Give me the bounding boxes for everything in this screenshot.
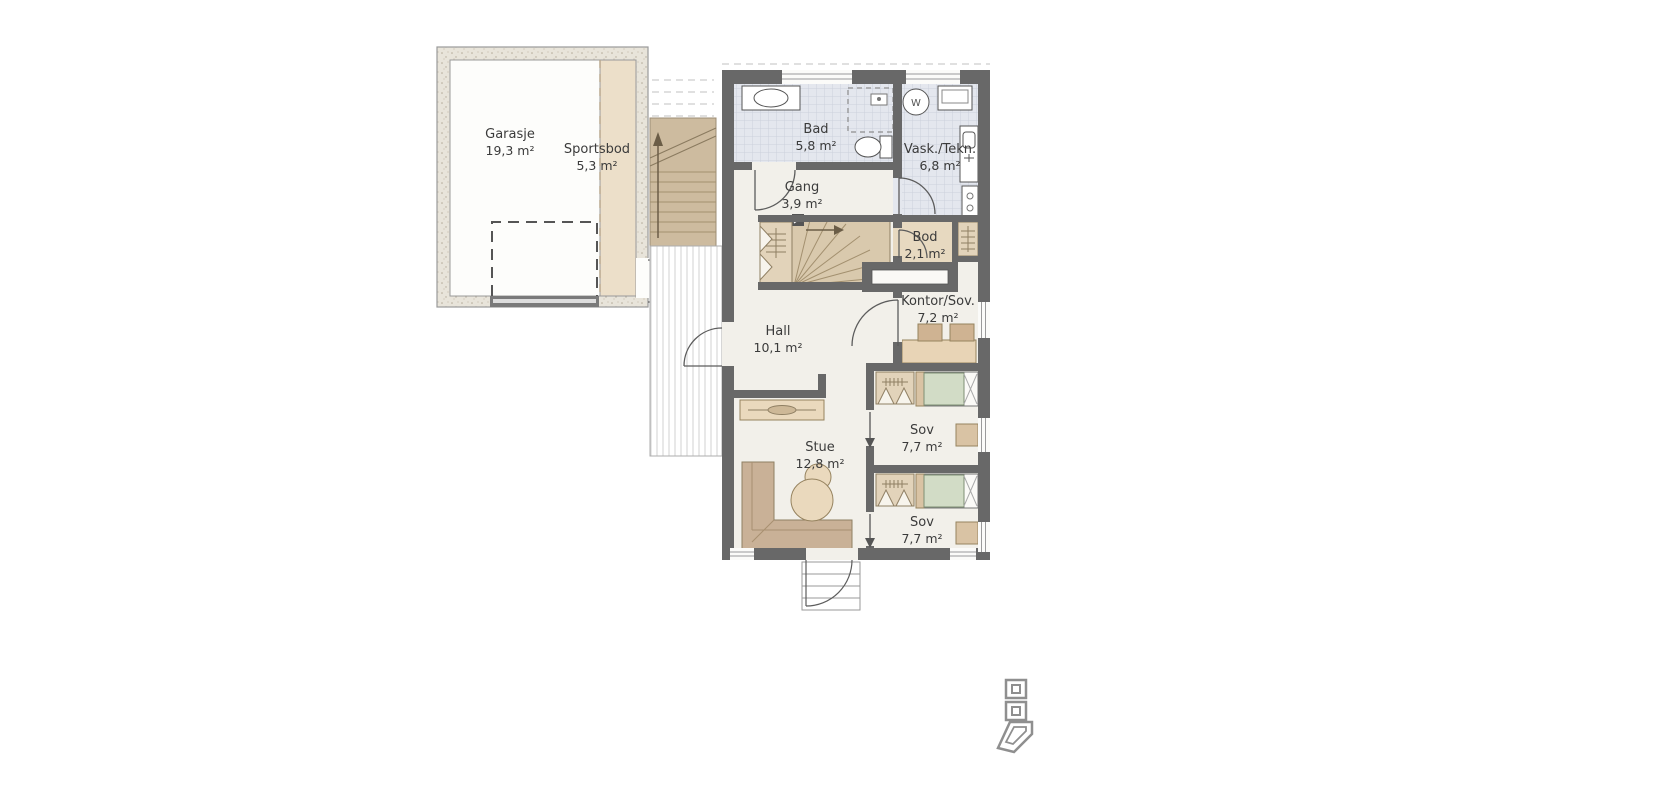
table-icon	[791, 479, 833, 521]
nightstand-icon	[956, 424, 978, 446]
window	[782, 70, 852, 84]
outdoor-stairs	[650, 118, 716, 246]
sov-corridor-wall	[866, 371, 874, 410]
room-label-gang-area: 3,9 m²	[781, 196, 822, 211]
room-label-sportsbod-name: Sportsbod	[564, 142, 630, 157]
sov-divider-wall	[866, 465, 978, 473]
west-wall	[722, 70, 734, 322]
east-wall	[978, 338, 990, 418]
room-label-stue-name: Stue	[805, 440, 835, 455]
floor-plan-svg: Garasje 19,3 m² Sportsbod 5,3 m²	[0, 0, 1670, 800]
bad-south-wall	[796, 162, 893, 170]
room-label-bad-name: Bad	[803, 122, 828, 137]
terrace-door-opening	[806, 548, 858, 560]
room-label-gang-name: Gang	[785, 180, 820, 195]
window	[978, 522, 990, 552]
niche-shelf	[862, 262, 958, 292]
room-label-bad-area: 5,8 m²	[795, 138, 836, 153]
window	[730, 548, 754, 560]
hall-stue-wall-return	[818, 374, 826, 398]
bod-door-opening	[893, 228, 902, 256]
room-label-sov2-area: 7,7 m²	[901, 531, 942, 546]
room-label-sportsbod-area: 5,3 m²	[576, 158, 617, 173]
hall-stue-wall	[734, 390, 826, 398]
east-wall	[978, 452, 990, 522]
niche-shelf-slot	[872, 270, 948, 284]
shower-dot	[877, 97, 881, 101]
washing-machine-label: W	[911, 98, 921, 109]
toilet-tank	[880, 136, 892, 158]
north-wall	[722, 70, 782, 84]
room-label-hall-name: Hall	[766, 324, 791, 339]
house: W	[684, 70, 990, 610]
east-wall	[978, 70, 990, 302]
stair-north-wall	[758, 215, 893, 222]
entrance-door-opening	[722, 322, 734, 366]
sov-corridor-wall	[866, 446, 874, 512]
room-label-sov1-area: 7,7 m²	[901, 439, 942, 454]
vask-west-wall	[893, 168, 902, 178]
bed-duvet	[924, 373, 964, 405]
room-label-sov1-name: Sov	[910, 423, 934, 438]
bad-vask-wall	[893, 84, 902, 168]
window	[978, 302, 990, 338]
north-wall	[852, 70, 906, 84]
chair-icon	[950, 324, 974, 341]
hall-closet	[760, 222, 792, 286]
kontor-south-wall	[866, 363, 978, 371]
bed-footboard	[916, 474, 924, 508]
room-sportsbod	[600, 60, 636, 296]
room-label-vask-name: Vask./Tekn.	[904, 142, 976, 157]
garage-door-inner	[493, 299, 596, 303]
room-label-sov2-name: Sov	[910, 515, 934, 530]
kontor-wardrobe	[958, 222, 978, 256]
sink-icon	[754, 89, 788, 107]
bad-south-wall	[734, 162, 752, 170]
bod-west-wall	[893, 256, 902, 262]
window	[906, 70, 960, 84]
stair-south-wall	[758, 282, 862, 290]
south-wall	[722, 548, 730, 560]
room-label-garasje-name: Garasje	[485, 127, 535, 142]
toilet-icon	[855, 137, 881, 157]
porch-steps	[802, 560, 860, 610]
bod-east-wall	[952, 222, 958, 262]
nightstand-icon	[956, 522, 978, 544]
deck	[650, 246, 722, 456]
room-label-kontor-area: 7,2 m²	[917, 310, 958, 325]
sideboard-handle	[768, 406, 796, 415]
room-label-bod-name: Bod	[912, 230, 937, 245]
vask-door-opening	[893, 178, 902, 214]
vask-south-wall	[893, 215, 978, 222]
bed-footboard	[916, 372, 924, 406]
room-label-hall-area: 10,1 m²	[754, 340, 803, 355]
desk-icon	[902, 340, 976, 363]
chair-icon	[918, 324, 942, 341]
window	[950, 548, 976, 560]
bed-duvet	[924, 475, 964, 507]
room-label-garasje-area: 19,3 m²	[486, 143, 535, 158]
bod-west-wall	[893, 222, 902, 228]
room-label-vask-area: 6,8 m²	[919, 158, 960, 173]
south-wall	[754, 548, 806, 560]
room-label-kontor-name: Kontor/Sov.	[901, 294, 975, 309]
room-label-stue-area: 12,8 m²	[796, 456, 845, 471]
sportsbod-door-opening	[636, 258, 649, 298]
room-garasje	[450, 60, 600, 296]
room-label-bod-area: 2,1 m²	[904, 246, 945, 261]
wardrobe-south-wall	[958, 256, 978, 262]
window	[978, 418, 990, 452]
west-wall	[722, 366, 734, 560]
